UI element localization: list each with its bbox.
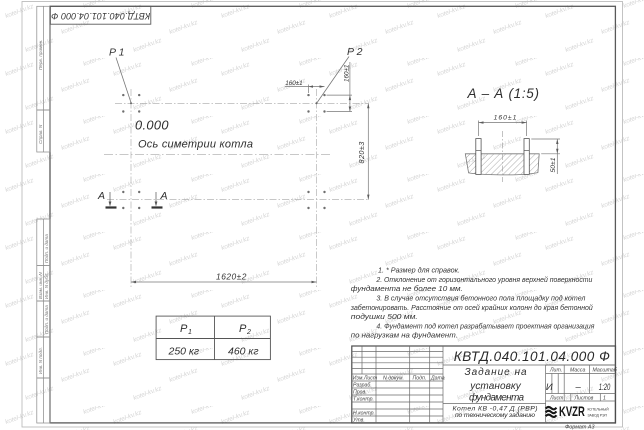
svg-text:Перв. примен.: Перв. примен. xyxy=(38,39,43,70)
svg-text:250 кг: 250 кг xyxy=(168,346,200,358)
svg-text:160±1: 160±1 xyxy=(285,80,302,87)
svg-text:забетонировать. Расстояние от: забетонировать. Расстояние от осей крайн… xyxy=(350,303,593,312)
svg-text:1: 1 xyxy=(188,329,192,336)
svg-text:КОТЕЛЬНЫЙ: КОТЕЛЬНЫЙ xyxy=(588,408,610,412)
svg-text:Листов: Листов xyxy=(574,395,594,401)
svg-text:по нагрузкам на фундамент.: по нагрузкам на фундамент. xyxy=(351,331,458,340)
svg-text:50±1: 50±1 xyxy=(550,157,557,172)
svg-text:А – А (1:5): А – А (1:5) xyxy=(467,86,540,101)
svg-text:Дата: Дата xyxy=(430,376,445,382)
svg-text:160±1: 160±1 xyxy=(344,65,351,82)
svg-text:Подп. и дата: Подп. и дата xyxy=(44,234,49,263)
svg-text:–: – xyxy=(575,382,582,393)
svg-text:Формат А3: Формат А3 xyxy=(565,425,595,430)
svg-text:1. * Размер для справок.: 1. * Размер для справок. xyxy=(378,266,460,275)
svg-text:КВТД.040.101.04.000 Ф: КВТД.040.101.04.000 Ф xyxy=(454,349,610,364)
svg-text:0.000: 0.000 xyxy=(135,118,169,133)
svg-text:Т.контр.: Т.контр. xyxy=(353,397,374,403)
svg-text:820±3: 820±3 xyxy=(357,141,366,163)
svg-text:подушки 500 мм.: подушки 500 мм. xyxy=(351,312,418,321)
svg-text:Утв.: Утв. xyxy=(353,418,365,424)
svg-text:Лит.: Лит. xyxy=(549,367,562,373)
svg-text:160±1: 160±1 xyxy=(494,115,518,122)
svg-text:Справ. N: Справ. N xyxy=(38,124,43,144)
svg-text:1:20: 1:20 xyxy=(599,382,611,392)
svg-text:Подп.: Подп. xyxy=(413,376,427,382)
svg-text:1: 1 xyxy=(603,395,606,401)
svg-text:Н.контр.: Н.контр. xyxy=(353,411,375,417)
svg-text:Пров.: Пров. xyxy=(353,390,367,396)
svg-text:KVZR: KVZR xyxy=(559,404,585,419)
svg-text:по техническому заданию: по техническому заданию xyxy=(455,411,535,419)
svg-text:1620±2: 1620±2 xyxy=(216,272,247,282)
svg-text:2: 2 xyxy=(246,329,251,336)
svg-text:фундамента не более 10 мм.: фундамента не более 10 мм. xyxy=(351,284,463,293)
svg-text:Изм.Лист: Изм.Лист xyxy=(353,376,378,382)
svg-text:P: P xyxy=(239,323,247,335)
svg-text:фундамента: фундамента xyxy=(469,392,524,404)
svg-text:А: А xyxy=(160,190,168,202)
svg-text:Задание на: Задание на xyxy=(465,367,527,378)
svg-text:установку: установку xyxy=(469,381,522,392)
svg-text:А: А xyxy=(97,190,105,202)
svg-text:Взам. инв. N: Взам. инв. N xyxy=(38,272,43,299)
svg-text:ЗАВОД РЭП: ЗАВОД РЭП xyxy=(588,414,608,418)
svg-text:Инв. N дубл.: Инв. N дубл. xyxy=(44,272,49,299)
svg-text:Разраб.: Разраб. xyxy=(353,383,372,389)
svg-text:Ось симетрии котла: Ось симетрии котла xyxy=(138,139,253,151)
svg-text:Масса: Масса xyxy=(570,367,585,373)
svg-text:N докум.: N докум. xyxy=(383,376,404,382)
svg-text:И: И xyxy=(546,382,553,393)
svg-text:Лист: Лист xyxy=(549,395,564,401)
svg-text:P: P xyxy=(180,323,188,335)
svg-text:460 кг: 460 кг xyxy=(228,346,259,358)
svg-text:2. Отклонение от горизонтально: 2. Отклонение от горизонтального уровня … xyxy=(375,275,592,284)
svg-text:КВТД.040.101.04.000 Ф: КВТД.040.101.04.000 Ф xyxy=(51,11,150,21)
svg-text:Масштаб: Масштаб xyxy=(593,367,618,373)
svg-text:Инв. N подл.: Инв. N подл. xyxy=(38,347,43,374)
svg-text:3. В случае отсутствия бетонно: 3. В случае отсутствия бетонного пола пл… xyxy=(376,294,586,303)
svg-text:Подп. и дата: Подп. и дата xyxy=(44,305,49,334)
svg-text:4. Фундамент под котел разраба: 4. Фундамент под котел разрабатывает про… xyxy=(376,321,594,330)
